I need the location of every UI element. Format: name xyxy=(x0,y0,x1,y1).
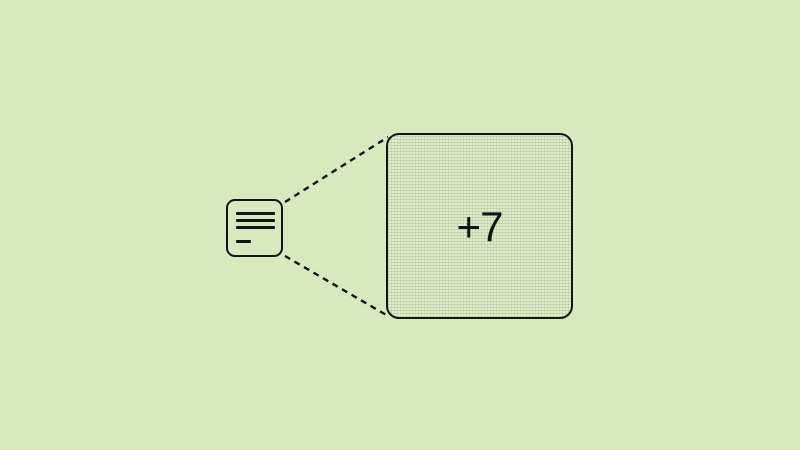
note-icon[interactable] xyxy=(226,199,283,257)
illustration-canvas: +7 xyxy=(0,0,800,450)
expanded-note-panel[interactable]: +7 xyxy=(386,133,573,319)
connector-bottom-line xyxy=(285,256,388,316)
more-count-label: +7 xyxy=(457,206,503,248)
note-text-line-icon xyxy=(236,226,275,229)
note-short-line-icon xyxy=(236,240,251,243)
note-text-line-icon xyxy=(236,219,275,222)
note-text-line-icon xyxy=(236,212,275,215)
connector-top-line xyxy=(285,137,388,202)
